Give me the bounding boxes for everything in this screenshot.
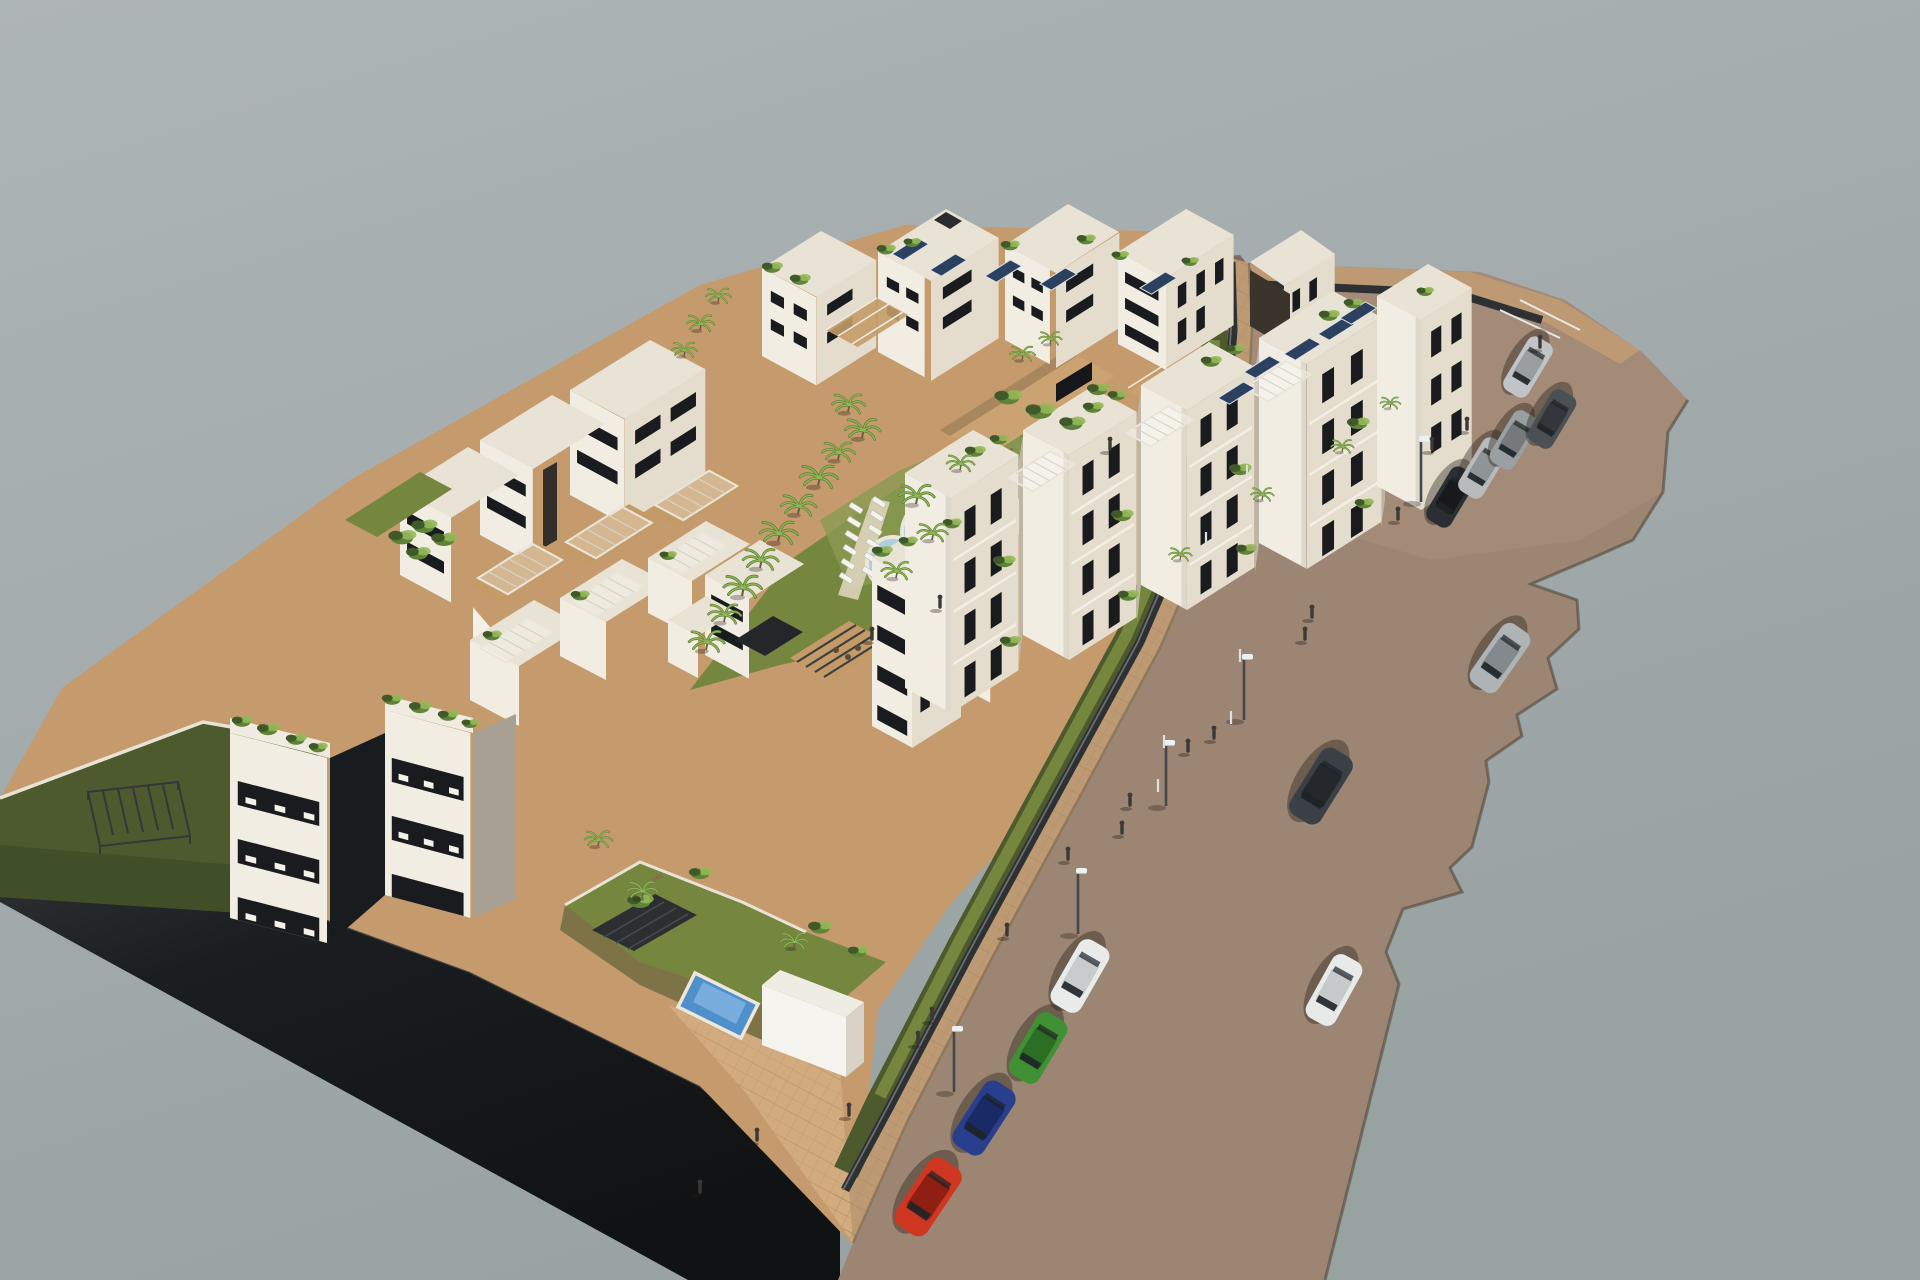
pedestrian <box>1100 437 1112 455</box>
pedestrian <box>922 1007 934 1025</box>
inner-court-dark <box>735 616 803 656</box>
palms-layer <box>585 289 1401 951</box>
pool-deck <box>838 498 890 600</box>
solar-panel <box>1340 302 1377 324</box>
pedestrian <box>1302 605 1314 623</box>
pedestrian <box>1530 335 1542 353</box>
shrub <box>438 710 459 721</box>
swimmer <box>883 557 888 562</box>
street-towers <box>905 264 1472 713</box>
west-lawn <box>0 722 318 918</box>
pedestrian <box>1112 821 1124 839</box>
shrub <box>990 435 1009 445</box>
palm-tree <box>724 576 762 600</box>
street-lamp <box>1148 740 1175 811</box>
sidewalk-wedge <box>668 1005 853 1243</box>
pedestrian <box>1178 739 1190 757</box>
background-sky <box>0 0 1920 1280</box>
pedestrian <box>1457 417 1469 435</box>
shrub <box>872 546 893 557</box>
solar-panel <box>930 254 967 276</box>
shrub <box>382 694 403 705</box>
shrub <box>877 245 896 255</box>
lamps-layer <box>936 436 1430 1097</box>
shrub <box>406 547 431 560</box>
perimeter <box>843 262 1233 1190</box>
car-black-car-parked <box>1414 451 1483 534</box>
garage-entry <box>1056 362 1092 402</box>
car-dark-suv-driving <box>1275 729 1363 832</box>
shrub <box>904 238 922 247</box>
car-white-car-driving <box>1292 937 1371 1033</box>
solar-panel <box>1244 356 1281 378</box>
palm-tree <box>832 395 865 416</box>
shrub <box>257 724 280 736</box>
shrub <box>1355 499 1374 509</box>
pedestrian <box>1295 627 1307 645</box>
sun-lounger <box>839 572 854 584</box>
sun-lounger <box>870 510 885 522</box>
shrub <box>411 520 437 534</box>
shrub <box>571 591 590 601</box>
pedestrian <box>930 595 942 613</box>
solar-panel <box>1218 382 1255 404</box>
loungers-layer <box>839 496 887 584</box>
palm-tree <box>1251 488 1274 502</box>
palm-tree <box>687 315 715 333</box>
palm-tree <box>781 495 816 517</box>
street-lamp <box>936 1026 963 1097</box>
sun-lounger <box>843 544 858 556</box>
street-lamp <box>1403 436 1430 507</box>
shrub <box>1026 404 1056 419</box>
courtyard <box>940 316 1188 456</box>
car-silver-car-parked <box>1446 422 1515 505</box>
palm-tree <box>585 831 613 849</box>
street-lamp <box>1060 868 1087 939</box>
playground <box>1003 426 1098 456</box>
pedestrian <box>1422 437 1434 455</box>
pedestrian <box>997 923 1009 941</box>
car-silver-car-parked-top <box>1491 321 1560 404</box>
shrub <box>899 537 918 547</box>
solar-panel <box>1040 268 1077 290</box>
shrub <box>1344 299 1363 309</box>
terrace-building-west <box>345 340 746 647</box>
shrub <box>286 734 307 745</box>
palm-tree <box>743 549 778 571</box>
car-darkgray-car-parked <box>1516 374 1584 454</box>
sun-lounger <box>872 496 887 508</box>
palm-tree <box>1169 548 1192 562</box>
shrub <box>848 946 869 957</box>
shrub <box>431 533 457 547</box>
solar-panel <box>892 238 929 260</box>
shrub <box>1226 345 1245 355</box>
pedestrian <box>1204 726 1216 744</box>
sun-lounger <box>868 524 883 536</box>
shrub <box>1112 251 1130 260</box>
communal-pool <box>867 483 1022 589</box>
shrub <box>1077 235 1096 245</box>
shrub <box>1118 590 1139 601</box>
sidewalk <box>668 258 1252 1243</box>
pergola-court <box>790 621 891 680</box>
courtyard-ramp <box>1128 359 1188 399</box>
scene-canvas <box>0 0 1920 1280</box>
pedestrian <box>839 1103 851 1121</box>
car-gray-car-parked <box>1478 395 1546 475</box>
shrub <box>627 895 653 909</box>
shrub <box>409 702 432 714</box>
palm-tree <box>947 455 975 473</box>
palm-tree <box>1331 440 1354 454</box>
people-layer <box>690 335 1542 1198</box>
palm-tree <box>899 485 934 507</box>
sun-lounger <box>847 516 862 528</box>
palm-tree <box>822 443 855 464</box>
solar-panel <box>985 260 1022 282</box>
palm-tree <box>1010 347 1035 363</box>
sidewalk-curb <box>853 263 1252 1243</box>
shrub <box>232 716 253 727</box>
sun-lounger <box>864 552 879 564</box>
shrub <box>762 262 783 273</box>
shrub <box>993 556 1016 568</box>
shrub <box>790 274 811 285</box>
block-north-left <box>762 231 908 385</box>
garden-pergola-dark <box>592 894 697 951</box>
site-base <box>0 225 1252 1245</box>
shrub <box>965 446 986 457</box>
car-green-hatchback-parked <box>995 995 1076 1091</box>
sun-lounger <box>849 502 864 514</box>
sidewalk-top <box>1150 255 1640 364</box>
pedestrian <box>1120 793 1132 811</box>
road-surface <box>838 263 1688 1280</box>
perimeter-wall <box>845 262 1233 1190</box>
palm-tree <box>672 343 697 359</box>
solar-panel <box>1140 272 1177 294</box>
shrub <box>1108 391 1127 401</box>
central-garden <box>690 412 1100 690</box>
shrub <box>1001 241 1020 251</box>
shrub <box>1236 544 1257 555</box>
shrub <box>1229 464 1252 476</box>
green-verge <box>846 330 1215 1172</box>
road-far-curb <box>1325 400 1688 1280</box>
pedestrian <box>747 1128 759 1146</box>
street-lamp <box>1226 654 1253 725</box>
block-north-back <box>878 209 999 381</box>
shrub <box>1000 636 1021 647</box>
kids-pool <box>867 537 919 589</box>
site-plinth-side <box>0 800 840 1280</box>
pedestrian <box>690 1180 702 1198</box>
sun-lounger <box>862 566 877 578</box>
shrub <box>808 921 833 934</box>
shrub <box>660 551 678 560</box>
palm-tree <box>1380 397 1400 410</box>
pedestrian <box>1058 847 1070 865</box>
central-cluster <box>668 495 1046 748</box>
shrub <box>462 719 480 728</box>
palm-tree <box>882 562 912 581</box>
terrace-chain <box>470 521 750 726</box>
render-viewport <box>0 0 1920 1280</box>
swimmer <box>904 553 909 558</box>
car-silver-hatch-driving <box>1456 606 1540 701</box>
shrub <box>689 868 712 880</box>
shrub <box>309 743 328 753</box>
shrub <box>943 519 962 529</box>
storage-box <box>762 970 864 1077</box>
palm-tree <box>760 522 798 546</box>
pedestrian <box>1388 507 1400 525</box>
car-white-pickup-parked <box>1037 922 1119 1020</box>
twin-towers-south-west <box>230 695 516 943</box>
shrub <box>1182 257 1200 266</box>
red-wall-art <box>1144 316 1151 324</box>
pedestrian <box>908 1031 920 1049</box>
palm-tree <box>918 524 948 543</box>
shrub <box>1319 310 1340 321</box>
shrub <box>994 390 1022 404</box>
sun-lounger <box>845 530 860 542</box>
garden-pool <box>678 973 758 1038</box>
palm-tree <box>1039 332 1062 346</box>
palm-tree <box>708 605 741 626</box>
swimmer <box>894 564 899 569</box>
sun-lounger <box>841 558 856 570</box>
solar-panel <box>1318 318 1355 340</box>
block-north-right <box>1118 209 1335 370</box>
swimmers-layer <box>883 553 909 569</box>
palm-tree <box>800 466 838 490</box>
sun-lounger <box>866 538 881 550</box>
shrub <box>1201 356 1222 367</box>
car-red-hatchback-parked <box>879 1139 972 1245</box>
cars-layer <box>879 321 1584 1245</box>
buildings <box>230 204 1472 943</box>
solar-panel <box>1284 338 1321 360</box>
bench-pergola <box>88 782 190 854</box>
block-north-back-2 <box>1005 204 1119 368</box>
palm-tree <box>781 933 809 951</box>
palm-tree <box>845 419 880 441</box>
panels-layer <box>892 238 1377 404</box>
car-blue-sedan-parked <box>938 1062 1026 1163</box>
shrub <box>1347 418 1370 430</box>
palm-tree <box>689 631 724 653</box>
shrub <box>1083 402 1104 413</box>
shrub <box>388 530 416 544</box>
shrub <box>1417 287 1435 296</box>
pedestrian <box>862 627 874 645</box>
shrub <box>1059 417 1085 431</box>
street <box>838 263 1688 1280</box>
shrub <box>483 631 502 641</box>
shrub <box>1111 510 1134 522</box>
south-garden <box>560 862 886 1077</box>
shrubs-layer <box>232 235 1434 957</box>
palm-tree <box>628 882 658 901</box>
palm-tree <box>706 289 731 305</box>
shrub <box>1087 384 1110 396</box>
picnic-table <box>651 874 664 883</box>
